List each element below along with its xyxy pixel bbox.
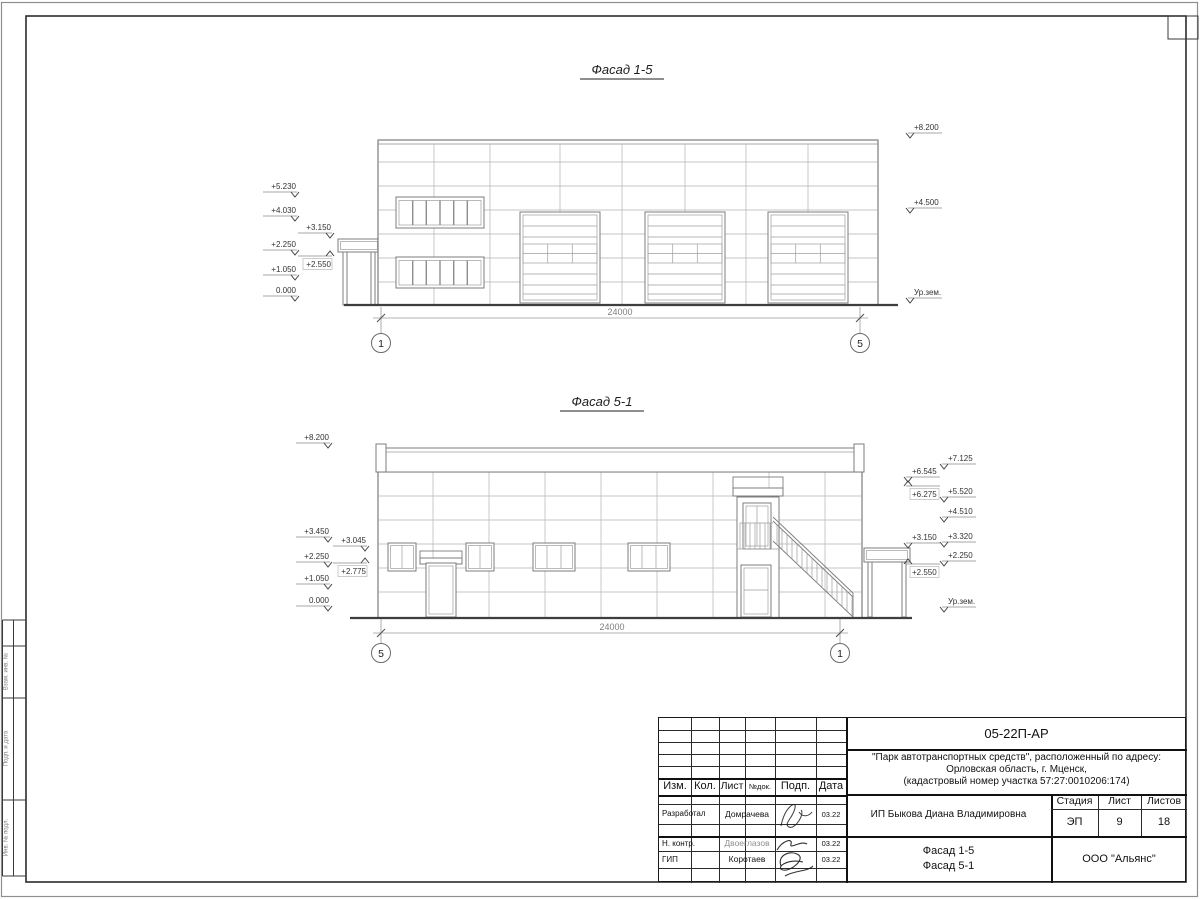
tb-project-name: "Парк автотранспортных средств", располо… xyxy=(851,749,1182,797)
svg-text:+2.550: +2.550 xyxy=(306,260,331,269)
svg-text:+2.250: +2.250 xyxy=(271,240,296,249)
svg-text:+1.050: +1.050 xyxy=(271,265,296,274)
tb-col-data: Дата xyxy=(816,778,846,795)
side-stamp-label-podp: Подп. и дата xyxy=(2,698,13,800)
facade1-building xyxy=(338,140,898,305)
svg-text:+2.250: +2.250 xyxy=(304,552,329,561)
elevation-mark: +3.450 xyxy=(296,527,332,542)
elevation-mark: Ур.зем. xyxy=(906,288,942,303)
tb-date-developer: 03.22 xyxy=(816,804,846,824)
facade2-title: Фасад 5-1 xyxy=(572,394,633,409)
svg-text:+3.150: +3.150 xyxy=(912,533,937,542)
tb-sheet-label: Лист xyxy=(1098,794,1141,809)
elevation-mark: +8.200 xyxy=(906,123,942,138)
corner-box xyxy=(1168,16,1198,39)
facade2-dimension-value: 24000 xyxy=(599,622,624,632)
svg-text:+4.510: +4.510 xyxy=(948,507,973,516)
elevation-mark: Ур.зем. xyxy=(940,597,976,612)
elevation-mark: +5.520 xyxy=(940,487,976,502)
svg-text:+3.150: +3.150 xyxy=(306,223,331,232)
tb-sheet-title-line2: Фасад 5-1 xyxy=(846,859,1051,874)
side-stamp-label-vzam: Взам. инв. № xyxy=(2,646,13,698)
elevation-mark: +5.230 xyxy=(263,182,299,197)
facade2-lower-door xyxy=(741,565,771,617)
facade1-gate-door-3 xyxy=(768,212,848,303)
facade1-entrance-canopy xyxy=(338,239,380,305)
elevation-mark: +7.125 xyxy=(940,454,976,469)
facade2-window-3 xyxy=(533,543,575,571)
tb-client: ИП Быкова Диана Владимировна xyxy=(846,794,1051,836)
elevation-mark: +2.550 xyxy=(298,251,334,270)
elevation-mark: +8.200 xyxy=(296,433,332,448)
tb-name-gip: Коротаев xyxy=(719,851,775,868)
facade2-building xyxy=(350,444,912,618)
tb-name-ncontrol: Двоеглазов xyxy=(719,836,775,851)
facade-5-1: Фасад 5-1 xyxy=(296,394,976,663)
elevation-mark: +4.500 xyxy=(906,198,942,213)
elevation-mark: +3.150 xyxy=(298,223,334,238)
facade2-entrance-door xyxy=(420,551,462,617)
svg-text:+3.320: +3.320 xyxy=(948,532,973,541)
tb-sheet-title-line1: Фасад 1-5 xyxy=(846,844,1051,859)
tb-doc-code: 05-22П-АР xyxy=(846,718,1187,749)
svg-text:0.000: 0.000 xyxy=(309,596,330,605)
signature-developer xyxy=(775,798,816,834)
facade2-right-porch xyxy=(864,548,910,617)
svg-text:+4.500: +4.500 xyxy=(914,198,939,207)
elevation-mark: +2.775 xyxy=(333,558,369,577)
elevation-mark: +2.250 xyxy=(296,552,332,567)
svg-text:+5.520: +5.520 xyxy=(948,487,973,496)
tb-role-ncontrol: Н. контр. xyxy=(662,836,719,851)
facade1-title: Фасад 1-5 xyxy=(592,62,654,77)
facade2-axis-right-label: 1 xyxy=(837,648,843,660)
title-block: Изм. Кол. Лист №док. Подп. Дата Разработ… xyxy=(658,717,1186,882)
svg-text:0.000: 0.000 xyxy=(276,286,297,295)
svg-text:+6.545: +6.545 xyxy=(912,467,937,476)
facade1-gate-door-1 xyxy=(520,212,600,303)
svg-text:+7.125: +7.125 xyxy=(948,454,973,463)
facade2-stair-tower xyxy=(733,477,783,618)
signature-ncontrol-gip xyxy=(773,836,817,880)
elevation-mark: +3.320 xyxy=(940,532,976,547)
facade2-window-1 xyxy=(388,543,416,571)
facade2-dimension: 24000 5 1 xyxy=(372,619,850,663)
svg-text:+2.250: +2.250 xyxy=(948,551,973,560)
tb-role-developer: Разработал xyxy=(662,804,719,824)
tb-role-gip: ГИП xyxy=(662,851,719,868)
elevation-mark: 0.000 xyxy=(296,596,332,611)
svg-text:+2.775: +2.775 xyxy=(341,567,366,576)
side-stamp-label-inv: Инв. № подл. xyxy=(2,800,13,876)
svg-text:+1.050: +1.050 xyxy=(304,574,329,583)
elevation-mark: 0.000 xyxy=(263,286,299,301)
svg-text:Ур.зем.: Ур.зем. xyxy=(948,597,975,606)
tb-sheet-title: Фасад 1-5 Фасад 5-1 xyxy=(846,836,1051,891)
tb-sheets-value: 18 xyxy=(1141,809,1187,836)
facade2-window-2 xyxy=(466,543,494,571)
elevation-mark: +3.150 xyxy=(904,533,940,548)
tb-project-line1: "Парк автотранспортных средств", располо… xyxy=(851,752,1182,764)
facade2-upper-door xyxy=(743,503,771,549)
facade1-axis-left-label: 1 xyxy=(378,338,384,350)
tb-col-kol: Кол. xyxy=(691,778,719,795)
facade2-parapet xyxy=(376,444,864,472)
tb-name-developer: Домрачева xyxy=(719,804,775,824)
tb-sheets-label: Листов xyxy=(1141,794,1187,809)
tb-project-line2: Орловская область, г. Мценск, xyxy=(851,764,1182,776)
tb-organization: ООО "Альянс" xyxy=(1051,836,1187,883)
svg-text:+8.200: +8.200 xyxy=(914,123,939,132)
elevation-mark: +4.510 xyxy=(940,507,976,522)
facade1-ribbon-window-lower xyxy=(396,257,484,288)
facade1-gate-door-2 xyxy=(645,212,725,303)
facade1-dimension: 24000 1 5 xyxy=(372,307,870,353)
tb-project-line3: (кадастровый номер участка 57:27:0010206… xyxy=(851,776,1182,788)
facade2-window-4 xyxy=(628,543,670,571)
facade-1-5: Фасад 1-5 xyxy=(263,62,942,353)
tb-sheet-value: 9 xyxy=(1098,809,1141,836)
elevation-mark: +4.030 xyxy=(263,206,299,221)
svg-text:Ур.зем.: Ур.зем. xyxy=(914,288,941,297)
elevation-mark: +3.045 xyxy=(333,536,369,551)
tb-col-ndok: №док. xyxy=(745,778,775,795)
svg-text:+2.550: +2.550 xyxy=(912,568,937,577)
facade1-dimension-value: 24000 xyxy=(607,307,632,317)
elevation-mark: +6.275 xyxy=(904,481,940,500)
tb-col-podp: Подп. xyxy=(775,778,816,795)
tb-col-izm: Изм. xyxy=(659,778,691,795)
facade2-axis-left-label: 5 xyxy=(378,648,384,660)
svg-text:+4.030: +4.030 xyxy=(271,206,296,215)
facade1-ribbon-window-upper xyxy=(396,197,484,228)
drawing-sheet: Фасад 1-5 xyxy=(0,0,1200,900)
svg-text:+3.045: +3.045 xyxy=(341,536,366,545)
tb-col-list: Лист xyxy=(719,778,745,795)
elevation-mark: +2.250 xyxy=(940,551,976,566)
svg-text:+6.275: +6.275 xyxy=(912,490,937,499)
elevation-mark: +1.050 xyxy=(296,574,332,589)
elevation-mark: +6.545 xyxy=(904,467,940,482)
svg-text:+3.450: +3.450 xyxy=(304,527,329,536)
tb-stage-value: ЭП xyxy=(1051,809,1098,836)
tb-date-ncontrol: 03.22 xyxy=(816,836,846,851)
svg-text:+8.200: +8.200 xyxy=(304,433,329,442)
elevation-mark: +2.250 xyxy=(263,240,299,255)
svg-text:+5.230: +5.230 xyxy=(271,182,296,191)
tb-stage-label: Стадия xyxy=(1051,794,1098,809)
elevation-mark: +1.050 xyxy=(263,265,299,280)
facade1-axis-right-label: 5 xyxy=(857,338,863,350)
tb-date-gip: 03.22 xyxy=(816,851,846,868)
